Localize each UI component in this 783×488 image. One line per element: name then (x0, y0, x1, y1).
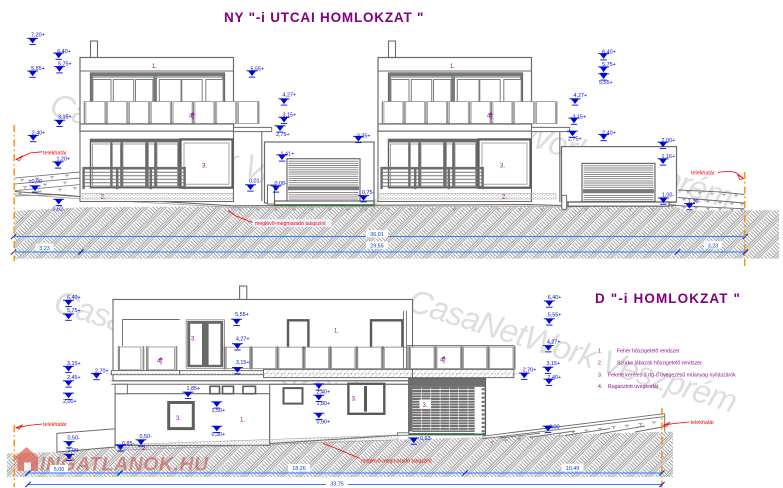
svg-text:5,55+: 5,55+ (251, 67, 265, 73)
svg-text:1.: 1. (152, 64, 157, 70)
svg-text:5,55+: 5,55+ (235, 312, 249, 318)
svg-text:18,26: 18,26 (292, 466, 306, 472)
svg-text:2,75+: 2,75+ (568, 137, 582, 143)
svg-text:0,08-: 0,08- (275, 181, 287, 187)
svg-text:±0,00: ±0,00 (546, 425, 559, 431)
svg-text:3,23: 3,23 (39, 246, 50, 252)
svg-text:2.: 2. (502, 194, 507, 200)
svg-text:29,55: 29,55 (370, 244, 384, 250)
svg-text:2.: 2. (598, 361, 602, 367)
svg-text:2,40+: 2,40+ (602, 130, 616, 136)
svg-text:5,55+: 5,55+ (31, 66, 45, 72)
svg-text:6,40+: 6,40+ (548, 295, 562, 301)
svg-text:3,15+: 3,15+ (58, 115, 72, 121)
svg-text:1,41+: 1,41+ (281, 151, 295, 157)
svg-text:1,16+: 1,16+ (662, 154, 676, 160)
svg-text:3,15+: 3,15+ (236, 360, 250, 366)
svg-text:2.: 2. (101, 194, 106, 200)
svg-text:1.: 1. (598, 349, 602, 355)
svg-text:5,75+: 5,75+ (58, 62, 72, 68)
svg-text:2,70+: 2,70+ (95, 368, 109, 374)
svg-text:5,55+: 5,55+ (548, 313, 562, 319)
svg-text:3.: 3. (202, 164, 207, 170)
svg-text:meglévő-megmaradó talajszint: meglévő-megmaradó talajszint (255, 221, 326, 227)
svg-text:6,40+: 6,40+ (57, 49, 71, 55)
svg-text:2.: 2. (142, 446, 147, 452)
svg-text:±0,00: ±0,00 (29, 179, 42, 185)
svg-text:3,23: 3,23 (708, 243, 719, 249)
svg-text:5,75+: 5,75+ (602, 62, 616, 68)
svg-text:4,27+: 4,27+ (574, 93, 588, 99)
svg-text:3.: 3. (191, 337, 196, 343)
svg-text:10,49: 10,49 (566, 466, 580, 472)
svg-text:Szürke lábazati hőszigetelő re: Szürke lábazati hőszigetelő rendszer (617, 361, 702, 367)
svg-text:4,27+: 4,27+ (547, 339, 561, 345)
svg-text:2,00+: 2,00+ (662, 138, 676, 144)
svg-text:1.: 1. (334, 329, 339, 335)
svg-text:1,00-: 1,00- (68, 448, 80, 454)
svg-text:1,80+: 1,80+ (317, 401, 331, 407)
svg-text:Fekete keretes 3 rtg-ű üvegezé: Fekete keretes 3 rtg-ű üvegezésű műanyag… (608, 372, 736, 378)
svg-text:4.: 4. (598, 384, 602, 390)
svg-text:5,55+: 5,55+ (599, 80, 613, 86)
svg-text:D "-i HOMLOKZAT ": D "-i HOMLOKZAT " (595, 291, 741, 306)
svg-text:2,25+: 2,25+ (357, 134, 371, 140)
svg-text:2,40+: 2,40+ (32, 131, 46, 137)
svg-text:2,00+: 2,00+ (63, 399, 77, 405)
svg-text:telekhatár: telekhatár (691, 171, 715, 177)
svg-text:3,15+: 3,15+ (67, 361, 81, 367)
svg-text:3.: 3. (352, 397, 357, 403)
svg-text:0,50-: 0,50- (68, 435, 80, 441)
svg-text:3,15+: 3,15+ (283, 112, 297, 118)
svg-text:36,01: 36,01 (370, 232, 384, 238)
svg-text:6,40+: 6,40+ (602, 50, 616, 56)
svg-text:1,50+: 1,50+ (212, 408, 226, 414)
svg-text:4,27+: 4,27+ (283, 92, 297, 98)
svg-text:meglévő-megmaradó talajszint: meglévő-megmaradó talajszint (361, 459, 432, 465)
svg-text:Fehér hőszigetelő rendszer: Fehér hőszigetelő rendszer (617, 349, 680, 355)
svg-text:0,90+: 0,90+ (317, 419, 331, 425)
svg-text:Ragasztott üvegkorlát: Ragasztott üvegkorlát (608, 384, 659, 390)
svg-text:NY "-i UTCAI HOMLOKZAT ": NY "-i UTCAI HOMLOKZAT " (224, 10, 424, 25)
svg-text:7,20+: 7,20+ (31, 32, 45, 38)
svg-text:0,62-: 0,62- (53, 206, 65, 212)
svg-text:2,75+: 2,75+ (276, 132, 290, 138)
svg-text:1.: 1. (240, 418, 245, 424)
svg-text:0,85-: 0,85- (122, 441, 134, 447)
svg-text:1,30-: 1,30- (688, 199, 700, 205)
svg-text:0,01-: 0,01- (249, 178, 261, 184)
svg-text:telekhatár: telekhatár (691, 420, 715, 426)
svg-text:5,75+: 5,75+ (67, 308, 81, 314)
svg-text:3,15+: 3,15+ (547, 361, 561, 367)
svg-text:2,40+: 2,40+ (548, 375, 562, 381)
svg-text:3,15+: 3,15+ (573, 115, 587, 121)
svg-text:5,00: 5,00 (54, 467, 65, 473)
svg-text:2,45+: 2,45+ (67, 375, 81, 381)
svg-text:0,75-: 0,75- (362, 190, 374, 196)
svg-text:1,00-: 1,00- (662, 192, 674, 198)
svg-text:telekhatár: telekhatár (43, 151, 67, 157)
svg-text:6,40+: 6,40+ (67, 295, 81, 301)
svg-text:3.: 3. (176, 416, 181, 422)
svg-text:0,50-: 0,50- (140, 434, 152, 440)
svg-text:4,27+: 4,27+ (236, 337, 250, 343)
svg-text:33,75: 33,75 (330, 481, 344, 487)
svg-text:telekhatár: telekhatár (43, 422, 67, 428)
svg-text:0,63-: 0,63- (420, 436, 432, 442)
svg-text:1,85+: 1,85+ (187, 386, 201, 392)
svg-text:2,70+: 2,70+ (523, 368, 537, 374)
svg-text:3.: 3. (423, 403, 428, 409)
svg-text:1,20+: 1,20+ (57, 157, 71, 163)
svg-text:3.: 3. (598, 372, 602, 378)
svg-text:0,30+: 0,30+ (212, 432, 226, 438)
